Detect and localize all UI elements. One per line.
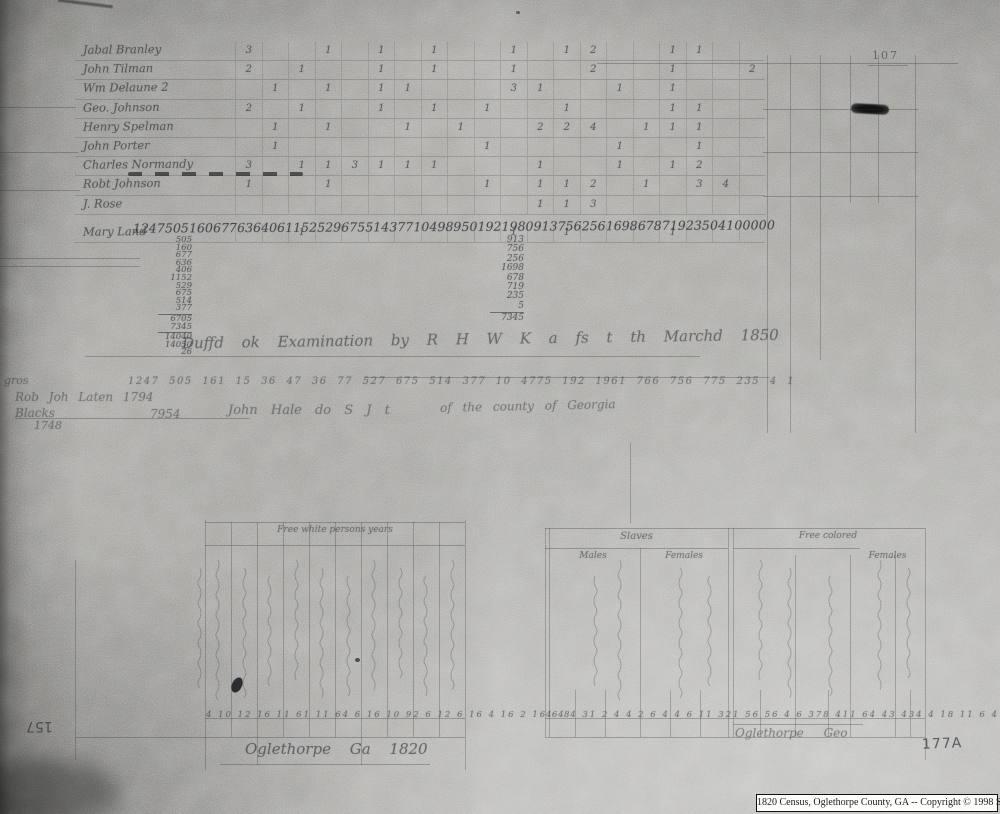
tally-cell: [262, 42, 289, 60]
tally-cell: [633, 80, 660, 98]
ruled-line: [850, 555, 851, 737]
slaves-header: Slaves: [545, 531, 728, 542]
tally-cell: [315, 196, 342, 214]
tally-cell: 1: [235, 176, 262, 194]
tally-cell: [288, 80, 315, 98]
tally-cell: 1: [553, 42, 580, 60]
sum-value: 7345: [468, 314, 524, 323]
sum-value: 5: [468, 302, 524, 311]
tally-cell: [394, 100, 421, 118]
tally-cell: [606, 42, 633, 60]
total-value: 256: [582, 218, 606, 233]
tally-cell: 1: [553, 196, 580, 214]
tally-cell: [368, 119, 395, 137]
tally-cell: 1: [447, 119, 474, 137]
tally-cell: [739, 80, 766, 98]
tally-cell: [712, 119, 739, 137]
tally-cell: [447, 42, 474, 60]
ruled-line: [545, 548, 728, 549]
tally-cell: 1: [368, 100, 395, 118]
tally-cell: [421, 80, 448, 98]
tally-cell: 1: [659, 157, 686, 175]
total-value: 0: [751, 217, 759, 232]
tally-cell: 1: [633, 176, 660, 194]
tally-cell: [341, 61, 368, 79]
ruled-line: [700, 690, 701, 737]
tally-cell: [341, 196, 368, 214]
ruled-line: [760, 690, 761, 737]
tally-cell: [606, 100, 633, 118]
slaves-females-subheader: Females: [640, 551, 728, 561]
tally-cell: 1: [288, 61, 315, 79]
tally-cell: [235, 138, 262, 156]
tally-cell: 2: [553, 119, 580, 137]
ruled-line: [231, 522, 232, 737]
total-value: 719: [662, 218, 686, 233]
tally-cell: [447, 196, 474, 214]
tally-cell: 1: [606, 138, 633, 156]
tally-cell: [500, 100, 527, 118]
tally-cell: 1: [659, 80, 686, 98]
tally-cell: [341, 42, 368, 60]
tally-cell: 1: [368, 61, 395, 79]
tally-cell: 1: [633, 119, 660, 137]
ruled-line: [545, 528, 925, 529]
ruled-line: [545, 528, 546, 737]
ruled-line: [309, 522, 310, 737]
tally-cell: 1: [686, 42, 713, 60]
head-of-family-name: John Porter: [75, 137, 235, 157]
tally-cell: 1: [527, 157, 554, 175]
tally-cell: 3: [235, 42, 262, 60]
ruled-line: [283, 522, 284, 737]
ruled-line: [413, 522, 414, 737]
tally-cell: 1: [686, 119, 713, 137]
ruled-line: [733, 548, 860, 549]
ruled-line: [763, 152, 918, 153]
ruled-line: [670, 690, 671, 737]
tally-cell: [288, 176, 315, 194]
tally-cell: [288, 42, 315, 60]
tally-cell: 1: [606, 80, 633, 98]
tally-cell: [712, 42, 739, 60]
tally-cell: 1: [686, 100, 713, 118]
tally-cell: 1: [394, 80, 421, 98]
total-value: 529: [317, 220, 341, 235]
tally-cell: [527, 138, 554, 156]
total-value: 192: [478, 219, 502, 234]
tally-cell: [686, 80, 713, 98]
tally-cell: [474, 157, 501, 175]
margin-note-line1: Rob Joh Laten 1794: [15, 390, 153, 404]
tally-cell: 1: [368, 157, 395, 175]
tally-cell: [288, 138, 315, 156]
margin-note-county: of the county of Georgia: [440, 397, 616, 415]
corner-scratch: [58, 0, 113, 8]
ruled-line: [605, 690, 606, 737]
tally-cell: [606, 176, 633, 194]
ruled-line: [387, 522, 388, 737]
tally-cell: [580, 138, 607, 156]
tally-cell: [712, 80, 739, 98]
head-of-family-name: Jabal Branley: [75, 41, 235, 61]
tally-cell: [474, 80, 501, 98]
tally-cell: [315, 138, 342, 156]
tally-cell: [633, 157, 660, 175]
tally-cell: [739, 100, 766, 118]
tally-cell: [659, 138, 686, 156]
tally-cell: 3: [341, 157, 368, 175]
tally-cell: [500, 157, 527, 175]
ruled-line: [763, 109, 918, 110]
total-value: 50: [461, 219, 477, 234]
ruled-line: [0, 258, 140, 259]
ruled-line: [630, 443, 631, 523]
ruled-line: [850, 55, 851, 203]
tally-cell: [474, 61, 501, 79]
tally-cell: [527, 42, 554, 60]
tally-cell: 1: [474, 138, 501, 156]
tally-cell: [553, 157, 580, 175]
tally-cell: 1: [262, 119, 289, 137]
head-of-family-name: Wm Delaune 2: [75, 80, 235, 100]
total-value: 636: [237, 220, 261, 235]
tally-cell: [447, 157, 474, 175]
tally-cell: 4: [712, 176, 739, 194]
tally-cell: 1: [315, 119, 342, 137]
head-of-family-name: John Tilman: [75, 60, 235, 80]
tally-cell: [739, 138, 766, 156]
ruled-line: [925, 528, 926, 760]
tally-cell: [341, 176, 368, 194]
total-value: 160: [189, 220, 213, 235]
tally-cell: [739, 176, 766, 194]
tally-cell: 2: [580, 176, 607, 194]
tally-cell: 1: [394, 119, 421, 137]
tally-cell: 4: [580, 119, 607, 137]
tally-cell: [447, 100, 474, 118]
tally-cell: [500, 196, 527, 214]
tally-cell: [235, 80, 262, 98]
ruled-line: [220, 764, 430, 765]
tally-cell: [474, 42, 501, 60]
ruled-line: [728, 528, 729, 737]
tally-cell: [633, 196, 660, 214]
tally-cell: [447, 61, 474, 79]
total-value: 406: [261, 220, 285, 235]
tally-cell: 1: [659, 119, 686, 137]
ruled-line: [365, 377, 770, 378]
tally-cell: [739, 119, 766, 137]
tally-cell: 1: [421, 100, 448, 118]
ruled-line: [575, 690, 576, 737]
margin-note-name: John Hale do S J t: [228, 403, 390, 418]
tally-cell: [341, 138, 368, 156]
family-row: John Porter1111: [75, 138, 765, 157]
head-of-family-name: Charles Normandy: [75, 156, 235, 176]
total-value: 4989: [429, 219, 461, 234]
head-of-family-name: Robt Johnson: [75, 175, 235, 195]
total-value: 678: [638, 218, 662, 233]
free-colored-subheader: Females: [850, 551, 925, 561]
ruled-line: [545, 737, 925, 738]
ruled-line: [733, 528, 734, 737]
caption-bar: 1820 Census, Oglethorpe County, GA -- Co…: [756, 794, 998, 812]
family-row: Henry Spelman1111224111: [75, 119, 765, 138]
ruled-line: [439, 522, 440, 737]
family-row: J. Rose113: [75, 196, 765, 215]
margin-word: gros: [4, 374, 29, 387]
ruled-line: [0, 152, 78, 153]
tally-cell: [580, 157, 607, 175]
tally-cell: 1: [315, 176, 342, 194]
tally-cell: [421, 176, 448, 194]
tally-cell: [633, 42, 660, 60]
margin-note-line3: 1748: [34, 419, 62, 432]
tally-cell: [580, 100, 607, 118]
tally-cell: [235, 119, 262, 137]
total-value: 1152: [285, 220, 317, 235]
middle-sum-column: 913756256169867871923557345: [468, 236, 524, 324]
tally-cell: 1: [262, 138, 289, 156]
total-value: 0: [742, 217, 750, 232]
tally-cell: [262, 100, 289, 118]
tally-cell: [474, 196, 501, 214]
family-row: Jabal Branley311111211: [75, 42, 765, 61]
tally-cell: 1: [553, 176, 580, 194]
tally-cell: [712, 196, 739, 214]
tally-cell: [739, 196, 766, 214]
total-value: 4: [718, 218, 726, 233]
tally-cell: [394, 138, 421, 156]
tally-cell: 1: [394, 157, 421, 175]
ruled-line: [910, 690, 911, 737]
tally-cell: [288, 119, 315, 137]
tally-cell: [527, 61, 554, 79]
tally-cell: [262, 157, 289, 175]
ruled-line: [828, 690, 829, 737]
tally-cell: [474, 119, 501, 137]
ruled-line: [335, 522, 336, 737]
total-value: 913: [534, 218, 558, 233]
tally-cell: [606, 119, 633, 137]
tally-cell: [421, 138, 448, 156]
tally-cell: 1: [659, 100, 686, 118]
total-value: 10: [413, 219, 429, 234]
tally-cell: 1: [500, 42, 527, 60]
total-value: 514: [365, 219, 389, 234]
tally-cell: 1: [659, 42, 686, 60]
tally-cell: 1: [527, 196, 554, 214]
ruled-line: [640, 548, 641, 737]
tally-cell: [553, 80, 580, 98]
ruled-line: [361, 522, 362, 765]
tally-cell: 2: [527, 119, 554, 137]
ruled-line: [75, 560, 76, 760]
ruled-line: [465, 520, 466, 770]
ruled-line: [15, 418, 250, 419]
total-value: 0: [759, 217, 767, 232]
ruled-line: [767, 55, 768, 433]
family-row: Charles Normandy31131111112: [75, 157, 765, 176]
tally-cell: 1: [315, 157, 342, 175]
tally-cell: 2: [580, 42, 607, 60]
tally-cell: 1: [421, 42, 448, 60]
family-row: John Tilman21111212: [75, 61, 765, 80]
total-value: 677: [213, 220, 237, 235]
tally-cell: [421, 196, 448, 214]
total-value: 0: [710, 218, 718, 233]
ruled-line: [0, 266, 140, 267]
tally-cell: 1: [686, 138, 713, 156]
ruled-line: [257, 522, 258, 765]
tally-cell: 1: [527, 176, 554, 194]
tally-cell: [739, 42, 766, 60]
tally-cell: [368, 176, 395, 194]
tally-cell: [659, 176, 686, 194]
ruled-line: [790, 55, 791, 433]
upper-tally-grid: Jabal Branley311111211John Tilman2111121…: [75, 42, 765, 243]
tally-cell: 1: [553, 100, 580, 118]
family-row: Robt Johnson111112134: [75, 176, 765, 195]
tally-cell: [712, 100, 739, 118]
tally-cell: [606, 196, 633, 214]
tally-cell: [421, 119, 448, 137]
tally-cell: 1: [315, 80, 342, 98]
tally-cell: [341, 100, 368, 118]
tally-cell: [712, 157, 739, 175]
tally-cell: [633, 138, 660, 156]
tally-cell: [262, 196, 289, 214]
tally-cell: 1: [421, 157, 448, 175]
tally-cell: 3: [500, 80, 527, 98]
tally-cell: 1: [262, 80, 289, 98]
page-number-stamp: 107: [872, 49, 899, 62]
ruled-line: [915, 55, 916, 433]
tally-cell: [659, 196, 686, 214]
ruled-line: [75, 737, 465, 738]
total-value: 1247: [133, 221, 165, 236]
tally-cell: 1: [421, 61, 448, 79]
tally-cell: 1: [500, 61, 527, 79]
total-value: 0: [734, 217, 742, 232]
total-value: 235: [686, 218, 710, 233]
ink-speck: [355, 658, 360, 662]
ruled-line: [795, 555, 796, 737]
ruled-line: [878, 55, 879, 203]
tally-cell: 1: [474, 100, 501, 118]
ruled-line: [733, 724, 863, 725]
tally-cell: [341, 80, 368, 98]
tally-cell: [527, 100, 554, 118]
total-value: 505: [165, 220, 189, 235]
rotated-margin-number: 157: [26, 718, 53, 734]
tally-cell: [341, 119, 368, 137]
tally-cell: [633, 100, 660, 118]
tally-cell: [235, 196, 262, 214]
examination-note: Duffd ok Examination by R H W K a fs t t…: [182, 326, 782, 352]
tally-cell: [553, 61, 580, 79]
ruled-line: [597, 63, 958, 64]
total-value: 0: [767, 217, 775, 232]
tally-cell: [447, 80, 474, 98]
tally-cell: 1: [288, 100, 315, 118]
head-of-family-name: Henry Spelman: [75, 118, 235, 138]
tally-cell: 2: [235, 100, 262, 118]
ruled-line: [549, 528, 550, 737]
corner-shadow: [0, 758, 120, 814]
tally-cell: 1: [288, 157, 315, 175]
total-value: 756: [558, 218, 582, 233]
total-value: 675: [341, 219, 365, 234]
tally-cell: 3: [580, 196, 607, 214]
ruled-line: [763, 196, 918, 197]
sum-value: 377: [140, 305, 192, 313]
tally-cell: [447, 176, 474, 194]
tally-cell: [394, 61, 421, 79]
total-value: 377: [389, 219, 413, 234]
tally-cell: [580, 80, 607, 98]
tally-cell: [368, 196, 395, 214]
tally-cell: 1: [368, 42, 395, 60]
tally-cell: 3: [235, 157, 262, 175]
tally-cell: 1: [606, 157, 633, 175]
tally-cell: [315, 100, 342, 118]
ruled-line: [868, 65, 908, 66]
free-colored-header: Free colored: [733, 531, 923, 541]
tally-cell: 3: [686, 176, 713, 194]
total-value: 1980: [502, 219, 534, 234]
tally-cell: [394, 42, 421, 60]
tally-cell: [500, 138, 527, 156]
tally-cell: [315, 61, 342, 79]
tally-cell: 1: [315, 42, 342, 60]
total-value: 1698: [606, 218, 638, 233]
head-of-family-name: J. Rose: [75, 195, 235, 215]
ruled-line: [895, 555, 896, 737]
tally-cell: [288, 196, 315, 214]
ruled-line: [0, 107, 76, 108]
tally-cell: [262, 176, 289, 194]
slaves-males-subheader: Males: [548, 551, 638, 561]
tally-cell: [447, 138, 474, 156]
family-row: Wm Delaune 211113111: [75, 80, 765, 99]
family-row: Geo. Johnson21111111: [75, 100, 765, 119]
page-label-handwritten: 177A: [922, 735, 963, 752]
ruled-line: [545, 718, 925, 719]
head-of-family-name: Geo. Johnson: [75, 99, 235, 119]
tally-cell: [712, 138, 739, 156]
tally-cell: [739, 157, 766, 175]
ruled-line: [205, 520, 206, 770]
tally-cell: [500, 176, 527, 194]
tally-cell: 1: [527, 80, 554, 98]
ruled-line: [0, 190, 80, 191]
tally-cell: 1: [368, 80, 395, 98]
tally-cell: [500, 119, 527, 137]
top-speck: [516, 11, 520, 14]
tally-cell: 2: [235, 61, 262, 79]
county-script-left: Oglethorpe Ga 1820: [245, 740, 428, 758]
sum-value: 235: [468, 292, 524, 301]
ruled-line: [85, 356, 700, 357]
tally-cell: [394, 176, 421, 194]
scanned-census-page: Jabal Branley311111211John Tilman2111121…: [0, 0, 1000, 814]
tally-cell: 2: [686, 157, 713, 175]
tally-cell: [686, 196, 713, 214]
tally-cell: 1: [474, 176, 501, 194]
tally-cell: [553, 138, 580, 156]
